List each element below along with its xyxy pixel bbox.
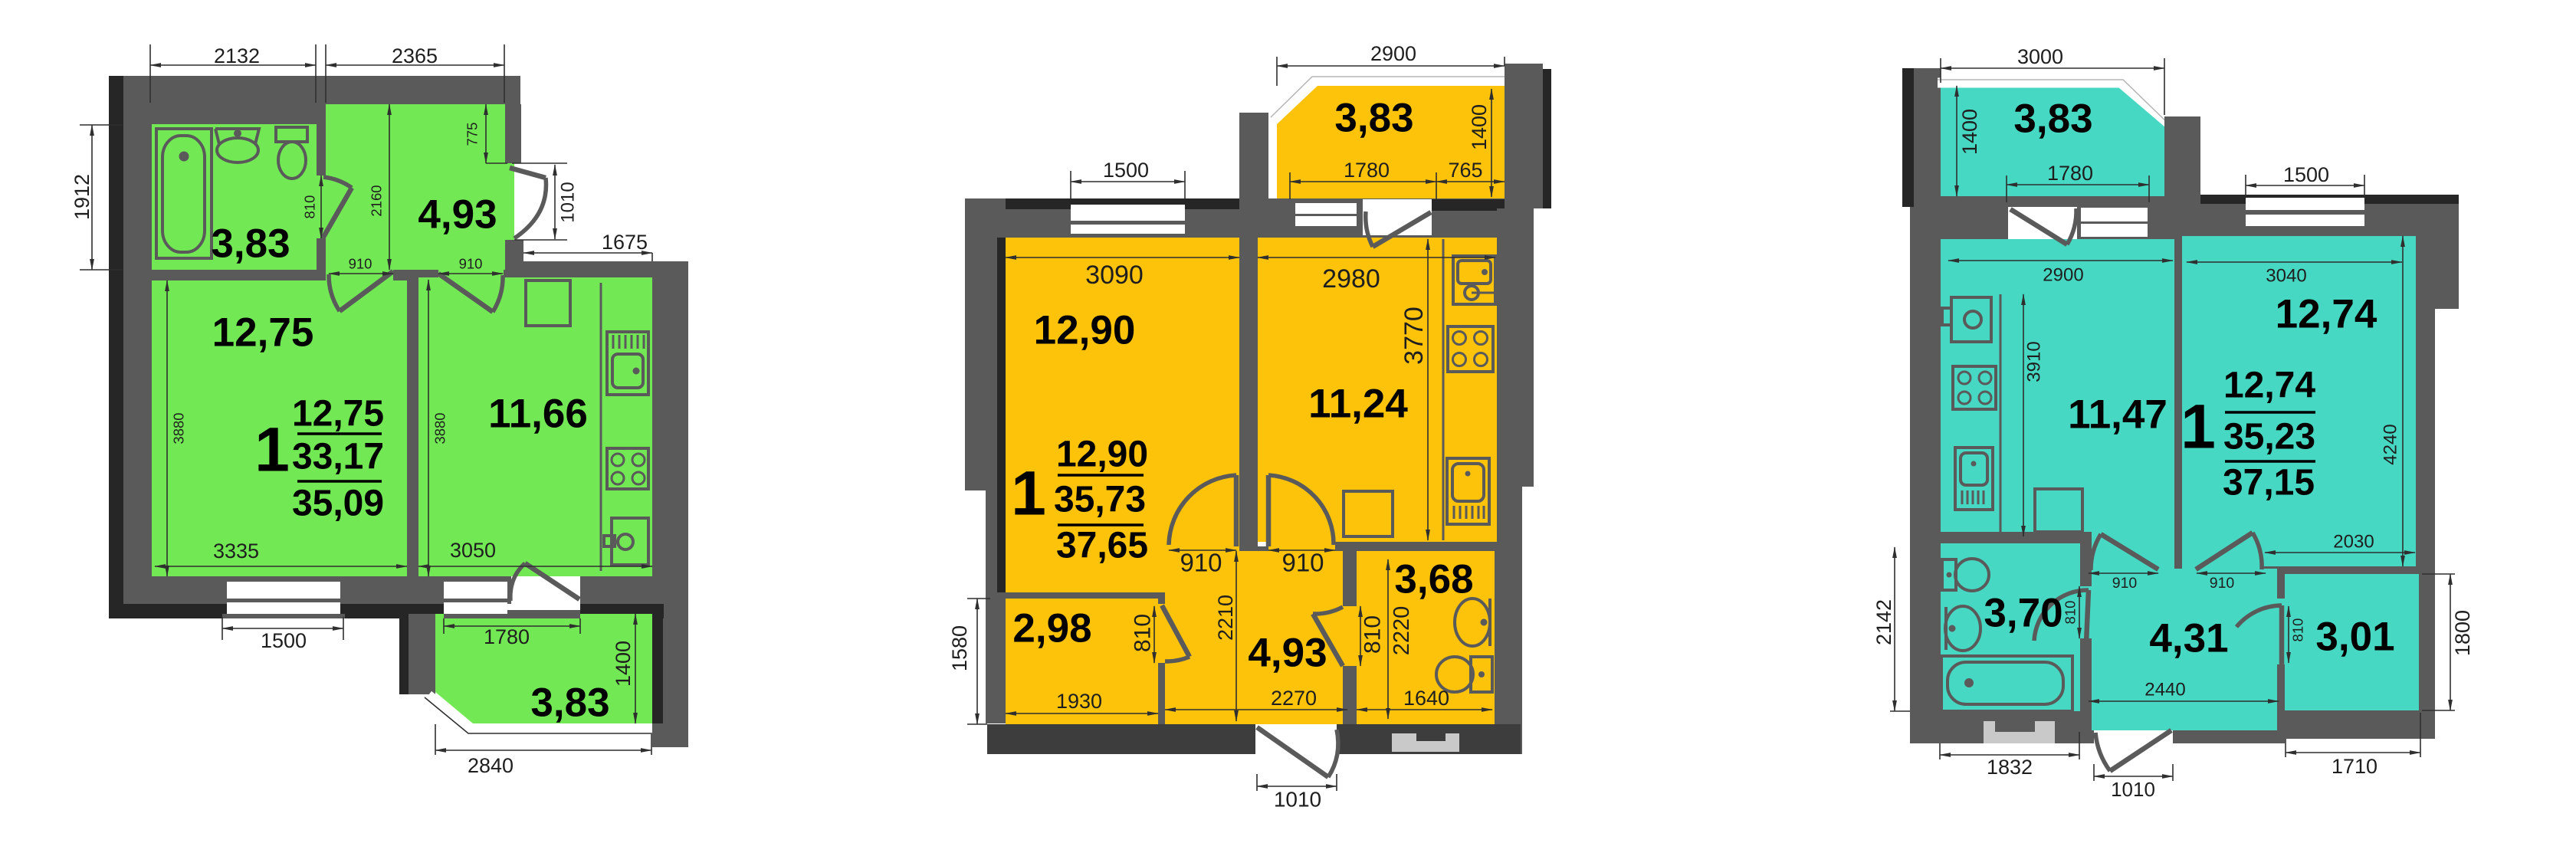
svg-text:2220: 2220 bbox=[1390, 606, 1414, 656]
svg-text:1780: 1780 bbox=[1344, 159, 1390, 182]
svg-text:35,09: 35,09 bbox=[292, 484, 384, 524]
svg-text:1780: 1780 bbox=[2047, 162, 2093, 185]
svg-text:1400: 1400 bbox=[1468, 104, 1491, 150]
svg-text:12,90: 12,90 bbox=[1056, 435, 1148, 475]
svg-text:3335: 3335 bbox=[213, 540, 259, 563]
svg-text:3,83: 3,83 bbox=[211, 221, 290, 267]
svg-text:3000: 3000 bbox=[2017, 45, 2063, 68]
svg-text:2160: 2160 bbox=[369, 185, 385, 216]
svg-text:3,68: 3,68 bbox=[1394, 557, 1473, 602]
svg-text:1780: 1780 bbox=[484, 625, 530, 648]
svg-text:1640: 1640 bbox=[1403, 687, 1449, 710]
svg-text:1800: 1800 bbox=[2451, 610, 2474, 656]
svg-text:910: 910 bbox=[2210, 575, 2235, 592]
svg-text:1500: 1500 bbox=[2283, 163, 2329, 186]
svg-text:2980: 2980 bbox=[1322, 264, 1380, 294]
svg-text:12,74: 12,74 bbox=[2223, 366, 2315, 406]
svg-text:1010: 1010 bbox=[558, 182, 579, 222]
svg-text:3,83: 3,83 bbox=[2013, 97, 2092, 142]
svg-text:4,31: 4,31 bbox=[2149, 616, 2228, 661]
svg-text:3040: 3040 bbox=[2266, 266, 2306, 287]
svg-text:910: 910 bbox=[2112, 575, 2138, 592]
svg-text:1500: 1500 bbox=[261, 629, 307, 652]
svg-text:1010: 1010 bbox=[1274, 788, 1321, 812]
svg-text:12,90: 12,90 bbox=[1034, 308, 1136, 353]
svg-text:775: 775 bbox=[464, 123, 481, 146]
svg-text:2030: 2030 bbox=[2333, 532, 2374, 553]
svg-text:1: 1 bbox=[2181, 392, 2216, 462]
svg-text:1912: 1912 bbox=[71, 174, 94, 220]
svg-text:11,24: 11,24 bbox=[1308, 382, 1408, 427]
svg-text:2142: 2142 bbox=[1872, 599, 1895, 645]
svg-text:1930: 1930 bbox=[1056, 690, 1102, 713]
svg-text:1580: 1580 bbox=[948, 625, 971, 671]
svg-text:3,83: 3,83 bbox=[530, 681, 609, 726]
svg-text:35,23: 35,23 bbox=[2223, 417, 2315, 458]
svg-text:2440: 2440 bbox=[2144, 680, 2185, 700]
svg-text:3,01: 3,01 bbox=[2315, 615, 2394, 660]
svg-text:3,70: 3,70 bbox=[1984, 591, 2062, 636]
svg-text:810: 810 bbox=[2062, 601, 2079, 625]
svg-text:37,15: 37,15 bbox=[2223, 463, 2315, 504]
svg-text:12,74: 12,74 bbox=[2276, 292, 2377, 337]
svg-text:35,73: 35,73 bbox=[1054, 480, 1146, 520]
svg-text:3770: 3770 bbox=[1400, 307, 1429, 365]
svg-text:765: 765 bbox=[1448, 159, 1482, 182]
svg-text:1010: 1010 bbox=[2111, 778, 2155, 801]
svg-text:1400: 1400 bbox=[1958, 109, 1981, 155]
svg-text:3,83: 3,83 bbox=[1334, 96, 1413, 141]
svg-text:3050: 3050 bbox=[450, 539, 496, 562]
svg-text:910: 910 bbox=[1180, 549, 1222, 577]
svg-text:2270: 2270 bbox=[1271, 687, 1317, 710]
svg-text:11,47: 11,47 bbox=[2068, 392, 2167, 438]
svg-text:2365: 2365 bbox=[392, 44, 438, 67]
svg-text:1710: 1710 bbox=[2332, 755, 2377, 778]
svg-text:37,65: 37,65 bbox=[1056, 526, 1148, 566]
svg-text:910: 910 bbox=[459, 256, 483, 272]
svg-text:33,17: 33,17 bbox=[292, 437, 384, 477]
svg-text:810: 810 bbox=[1130, 614, 1156, 652]
svg-text:1832: 1832 bbox=[1987, 756, 2033, 779]
svg-text:910: 910 bbox=[349, 256, 372, 272]
svg-text:910: 910 bbox=[1281, 549, 1324, 577]
svg-text:810: 810 bbox=[1360, 615, 1386, 654]
svg-text:3880: 3880 bbox=[432, 412, 448, 444]
svg-text:12,75: 12,75 bbox=[212, 310, 314, 356]
svg-text:3090: 3090 bbox=[1085, 261, 1144, 290]
svg-text:1500: 1500 bbox=[1103, 159, 1149, 182]
svg-text:4,93: 4,93 bbox=[1248, 631, 1327, 676]
svg-text:11,66: 11,66 bbox=[488, 392, 588, 437]
svg-text:3910: 3910 bbox=[2024, 341, 2045, 382]
svg-text:2900: 2900 bbox=[2043, 265, 2083, 286]
svg-text:810: 810 bbox=[302, 195, 318, 219]
svg-text:1400: 1400 bbox=[612, 641, 635, 687]
svg-text:12,75: 12,75 bbox=[292, 394, 384, 435]
svg-text:1: 1 bbox=[254, 415, 290, 485]
svg-text:3880: 3880 bbox=[171, 412, 187, 444]
svg-text:2132: 2132 bbox=[214, 44, 260, 67]
svg-text:810: 810 bbox=[2290, 618, 2306, 642]
svg-text:1: 1 bbox=[1011, 459, 1046, 529]
svg-text:1675: 1675 bbox=[602, 231, 648, 254]
svg-text:4,93: 4,93 bbox=[418, 192, 497, 238]
svg-text:4240: 4240 bbox=[2381, 424, 2401, 464]
svg-text:2210: 2210 bbox=[1214, 595, 1237, 641]
svg-text:2900: 2900 bbox=[1370, 42, 1416, 65]
svg-text:2,98: 2,98 bbox=[1012, 606, 1091, 651]
svg-text:2840: 2840 bbox=[468, 754, 514, 777]
